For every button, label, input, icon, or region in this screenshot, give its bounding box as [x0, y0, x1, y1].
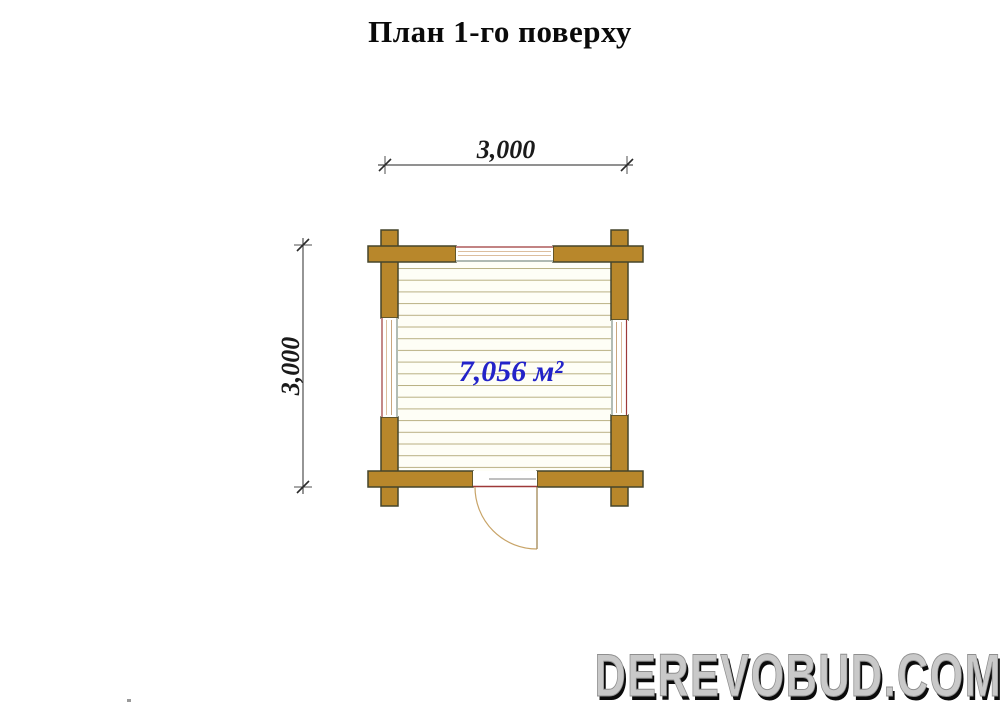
right-wall-log-top	[611, 230, 628, 320]
top-wall-log-right	[553, 246, 643, 262]
window-left	[381, 318, 398, 417]
left-wall-log-bottom	[381, 417, 398, 506]
top-wall-log-left	[368, 246, 456, 262]
left-wall-log-top	[381, 230, 398, 318]
speck-artifact	[127, 699, 131, 702]
window-top-opening	[456, 246, 553, 262]
window-right-opening	[611, 320, 628, 415]
bottom-wall-log-left	[368, 471, 473, 487]
window-top	[456, 246, 553, 262]
door	[473, 471, 537, 549]
watermark: DEREVOBUD.COM	[594, 644, 1000, 707]
bottom-wall-log-right	[537, 471, 643, 487]
right-wall-log-bottom	[611, 415, 628, 506]
dimension-width-label: 3,000	[476, 135, 536, 164]
area-label: 7,056 м²	[459, 355, 565, 388]
dimension-height-label: 3,000	[276, 337, 305, 397]
floor-plan-drawing: 3,000 3,000 7,056 м²	[0, 0, 1000, 707]
window-right	[611, 320, 628, 415]
window-left-opening	[381, 318, 398, 417]
door-swing-arc	[475, 487, 537, 549]
